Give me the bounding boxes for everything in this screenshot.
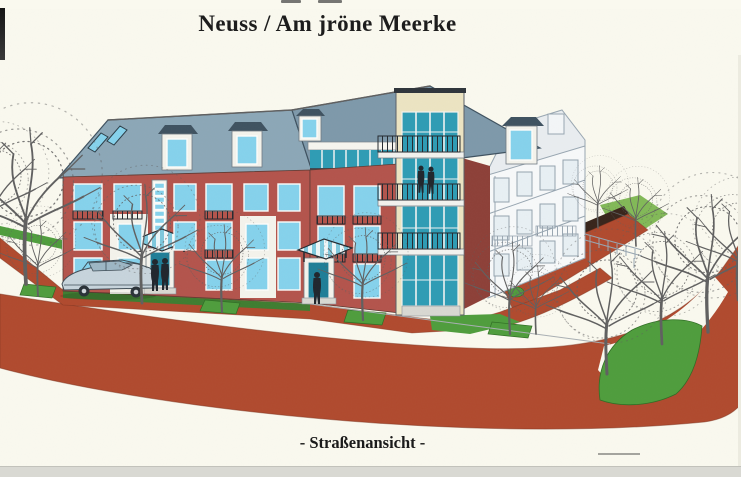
scanned-page: Neuss / Am jröne Meerke: [0, 0, 741, 477]
view-caption: - Straßenansicht -: [0, 433, 725, 453]
scan-artifact-top-2: [318, 0, 342, 3]
scan-artifact-top-1: [281, 0, 301, 3]
architectural-rendering: [0, 0, 741, 477]
scan-artifact-line: [598, 453, 640, 455]
scan-artifact-left: [0, 8, 5, 60]
scan-strip-bottom: [0, 466, 741, 477]
paper-grain: [0, 50, 741, 460]
